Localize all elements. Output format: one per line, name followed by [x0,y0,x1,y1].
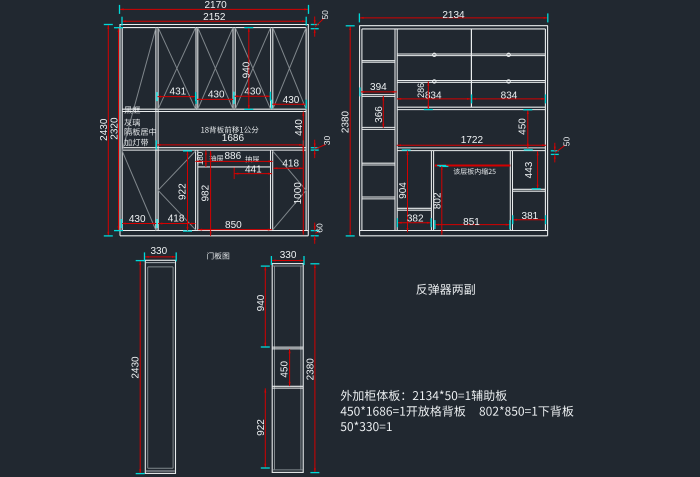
svg-text:940: 940 [241,61,252,78]
svg-text:382: 382 [407,213,424,224]
svg-text:418: 418 [282,158,299,169]
svg-text:834: 834 [425,91,442,102]
svg-text:450: 450 [280,361,291,378]
svg-text:2152: 2152 [203,12,226,23]
svg-text:802: 802 [432,192,443,209]
svg-text:2380: 2380 [341,110,352,133]
svg-text:440: 440 [294,119,305,136]
svg-text:30: 30 [322,136,332,146]
svg-text:430: 430 [283,95,300,106]
svg-text:922: 922 [178,183,189,200]
svg-text:430: 430 [129,214,146,225]
svg-text:441: 441 [245,165,262,176]
svg-text:2380: 2380 [306,358,317,381]
svg-text:2430: 2430 [131,356,142,379]
svg-text:418: 418 [168,213,185,224]
svg-text:381: 381 [522,211,539,222]
svg-text:430: 430 [244,87,261,98]
svg-text:1686: 1686 [222,133,245,144]
svg-text:982: 982 [201,184,212,201]
svg-text:431: 431 [170,87,187,98]
svg-text:904: 904 [398,182,409,199]
svg-text:922: 922 [256,419,267,436]
svg-text:1722: 1722 [461,135,484,146]
svg-text:2170: 2170 [204,0,227,11]
svg-text:330: 330 [280,250,297,261]
svg-text:886: 886 [224,151,241,162]
svg-text:2320: 2320 [109,117,120,140]
svg-text:1000: 1000 [293,182,304,205]
svg-text:366: 366 [374,106,385,123]
svg-text:834: 834 [501,91,518,102]
svg-text:50: 50 [320,10,330,20]
svg-text:180: 180 [196,151,205,165]
svg-text:50: 50 [561,137,571,147]
svg-text:850: 850 [225,220,242,231]
svg-text:430: 430 [208,90,225,101]
svg-text:394: 394 [370,82,387,93]
svg-text:940: 940 [256,294,267,311]
svg-text:330: 330 [150,246,167,257]
svg-text:2134: 2134 [442,10,465,21]
svg-text:443: 443 [524,161,535,178]
svg-text:851: 851 [463,217,480,228]
svg-text:286: 286 [416,83,426,98]
svg-text:60: 60 [315,223,325,233]
svg-text:450: 450 [518,118,529,135]
